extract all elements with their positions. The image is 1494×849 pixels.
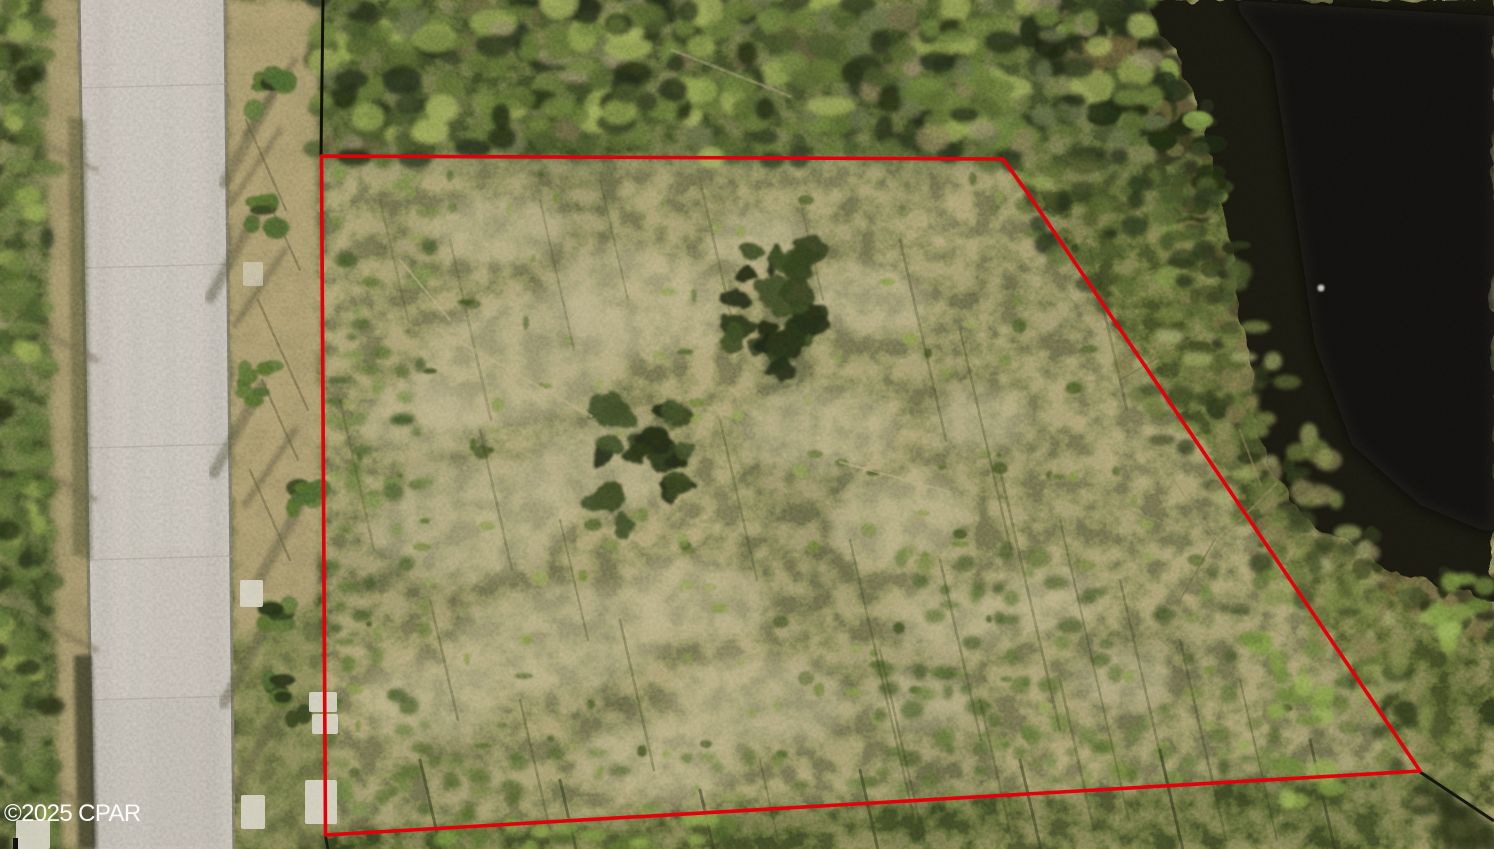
svg-text:©2025 CPAR: ©2025 CPAR: [4, 800, 141, 827]
